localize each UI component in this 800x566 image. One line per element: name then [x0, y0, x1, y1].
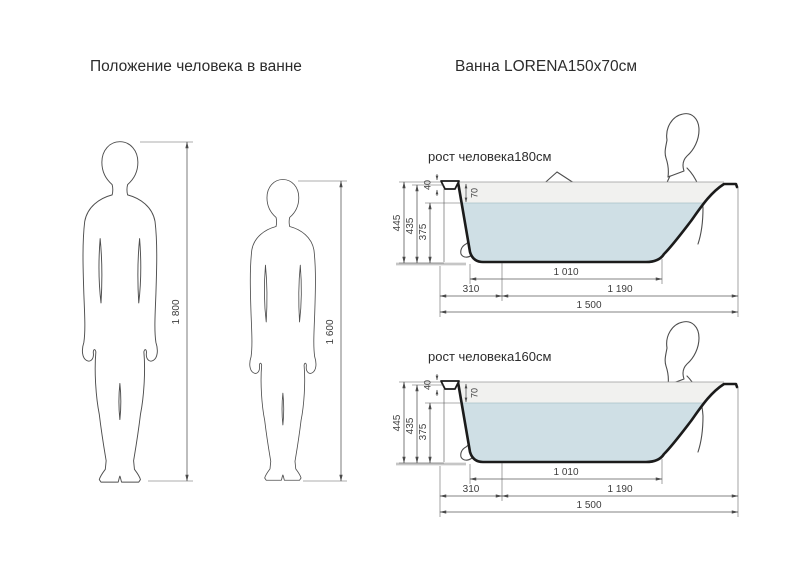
right-panel-title: Ванна LORENA150x70см — [455, 58, 637, 75]
tub1-label: рост человека180см — [428, 149, 551, 164]
person-silhouette-160 — [250, 180, 316, 481]
bather-head-180 — [665, 114, 699, 177]
tub-drawing-1 — [392, 174, 738, 317]
person-silhouette-180 — [82, 142, 157, 482]
tub-drawing-2 — [392, 374, 738, 517]
bather-head-160 — [665, 322, 699, 385]
dim-value-1600: 1 600 — [325, 319, 336, 344]
dim-value-1800: 1 800 — [171, 299, 182, 324]
tub2-label: рост человека160см — [428, 349, 551, 364]
diagram-canvas: 445 435 375 40 70 1 010 310 1 190 1 500 … — [0, 0, 800, 566]
left-panel-title: Положение человека в ванне — [90, 58, 302, 75]
bathtub-technical-diagram: 445 435 375 40 70 1 010 310 1 190 1 500 … — [0, 0, 800, 566]
